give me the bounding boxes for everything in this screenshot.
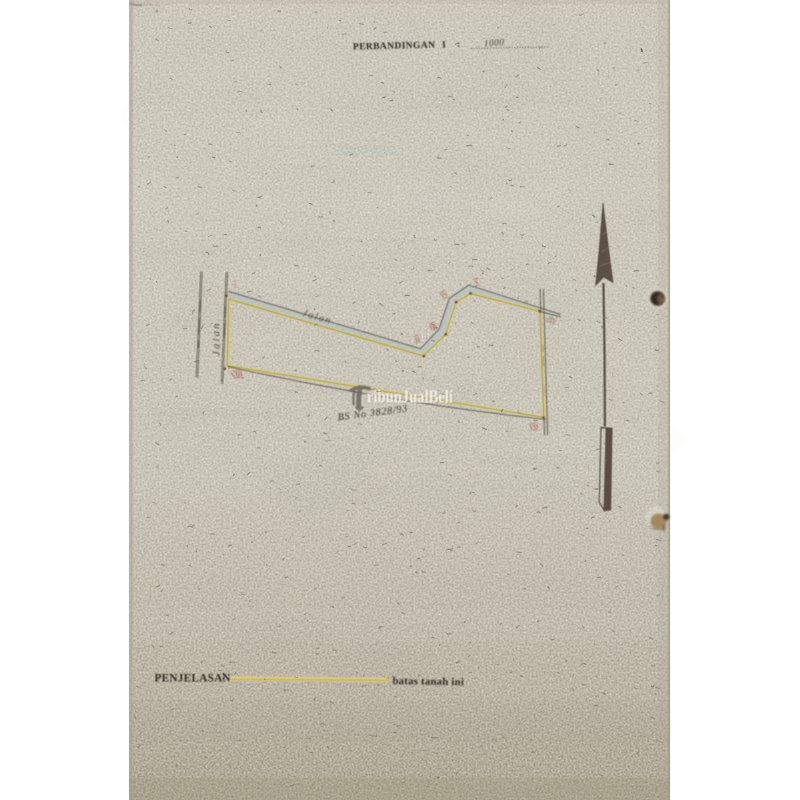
svg-text:PERBANDINGAN: PERBANDINGAN [353, 41, 436, 53]
svg-text:PENJELASAN: PENJELASAN [155, 673, 231, 685]
svg-text:batas tanah ini: batas tanah ini [392, 676, 464, 688]
svg-text:Jalan: Jalan [211, 322, 223, 356]
svg-text:1: 1 [441, 39, 446, 50]
svg-text::: : [457, 39, 460, 50]
svg-text:ribunJualBeli: ribunJualBeli [367, 387, 453, 407]
svg-text:1000: 1000 [484, 38, 505, 49]
